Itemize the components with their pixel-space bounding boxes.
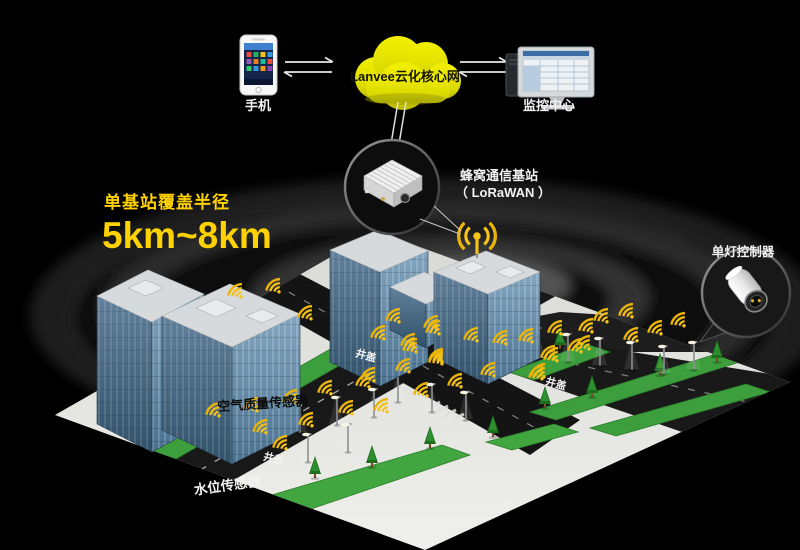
cloud-label: Lanvee云化核心网 [350,69,460,84]
basestation-label-line2: （ LoRaWAN ） [455,185,551,200]
lamp-controller-label: 单灯控制器 [712,244,775,259]
building-with-basestation [434,247,540,384]
coverage-range-text: 5km~8km [102,215,272,256]
phone-icon [240,35,277,95]
building [162,284,300,464]
smart-city-diagram: 空气质量传感器 水位传感器 井盖 井盖 井盖 手机 [0,0,800,550]
diagram-canvas: 空气质量传感器 水位传感器 井盖 井盖 井盖 手机 [0,0,800,550]
monitor-label: 监控中心 [523,98,575,113]
basestation-label-line1: 蜂窝通信基站 [460,168,538,183]
coverage-caption-text: 单基站覆盖半径 [104,192,230,212]
phone-label: 手机 [245,98,271,113]
